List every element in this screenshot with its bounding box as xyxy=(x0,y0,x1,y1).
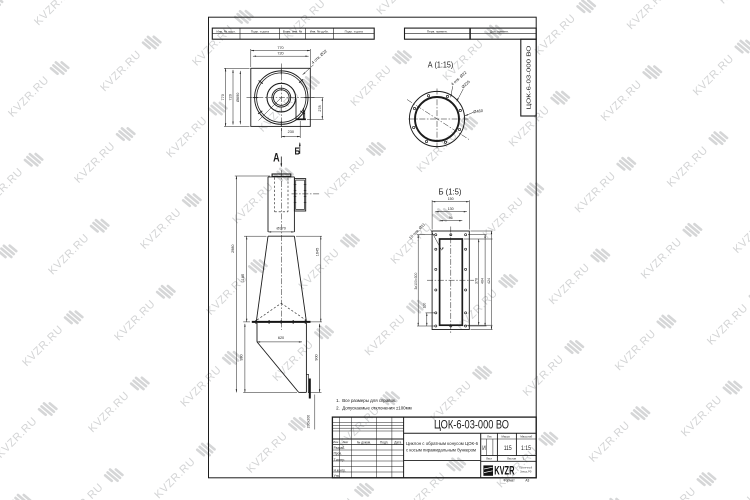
svg-text:1. Все размеры для справок.: 1. Все размеры для справок. xyxy=(336,398,396,403)
svg-text:Масса: Масса xyxy=(501,435,510,439)
svg-text:2980: 2980 xyxy=(231,244,235,252)
svg-text:Ø370: Ø370 xyxy=(277,226,286,230)
svg-text:900: 900 xyxy=(315,354,319,360)
svg-text:278: 278 xyxy=(318,105,322,111)
svg-text:Листов: Листов xyxy=(507,457,517,461)
svg-text:Формат: Формат xyxy=(503,478,515,482)
svg-text:720: 720 xyxy=(229,94,233,100)
svg-text:Инв. № дубл.: Инв. № дубл. xyxy=(310,29,329,33)
svg-text:KVZR: KVZR xyxy=(494,466,515,478)
svg-text:1645: 1645 xyxy=(316,248,320,256)
svg-text:Лист: Лист xyxy=(486,457,493,461)
svg-text:Пров.: Пров. xyxy=(334,452,343,456)
svg-text:Доп. примен.: Доп. примен. xyxy=(490,29,509,33)
svg-text:Б (1:5): Б (1:5) xyxy=(439,188,462,197)
svg-text:1: 1 xyxy=(523,457,525,461)
svg-text:370: 370 xyxy=(474,278,478,284)
svg-text:Подп.: Подп. xyxy=(380,440,389,444)
svg-text:Изм.: Изм. xyxy=(333,440,339,444)
svg-text:720: 720 xyxy=(277,52,283,56)
svg-text:Масштаб: Масштаб xyxy=(520,435,532,439)
svg-text:4 отв. Ø22: 4 отв. Ø22 xyxy=(310,48,328,65)
svg-text:Циклон с обратным конусом ЦОК-: Циклон с обратным конусом ЦОК-6 xyxy=(406,441,479,446)
svg-text:3х100=300: 3х100=300 xyxy=(414,272,418,289)
svg-text:И: И xyxy=(482,446,486,452)
svg-text:Ø690: Ø690 xyxy=(236,93,240,102)
svg-text:А (1:15): А (1:15) xyxy=(428,61,454,70)
svg-text:2. Допускаемые отклонения ±10: 2. Допускаемые отклонения ±100мм xyxy=(336,405,412,410)
svg-text:770: 770 xyxy=(277,46,283,50)
svg-text:115: 115 xyxy=(504,446,513,452)
svg-text:770: 770 xyxy=(221,94,225,100)
svg-text:Завод.РФ: Завод.РФ xyxy=(520,469,532,473)
svg-text:404: 404 xyxy=(481,278,485,284)
svg-text:200х200: 200х200 xyxy=(307,415,311,428)
svg-text:Кузнечный: Кузнечный xyxy=(519,466,532,470)
svg-text:100: 100 xyxy=(422,303,426,309)
svg-text:96: 96 xyxy=(449,216,453,220)
svg-text:230: 230 xyxy=(288,130,294,134)
svg-text:№ докум.: № докум. xyxy=(357,440,371,444)
svg-text:10 отв. Ø11: 10 отв. Ø11 xyxy=(408,221,427,240)
svg-text:1180: 1180 xyxy=(241,274,245,282)
svg-text:620: 620 xyxy=(278,336,284,340)
svg-text:Н.контр.: Н.контр. xyxy=(334,469,346,473)
svg-text:Разраб.: Разраб. xyxy=(334,446,346,450)
svg-text:Т.контр.: Т.контр. xyxy=(334,458,346,462)
svg-text:930: 930 xyxy=(239,354,243,360)
svg-text:с косым пирамидальным бункеро: с косым пирамидальным бункером xyxy=(406,448,476,453)
svg-text:Дата: Дата xyxy=(394,440,401,444)
svg-text:А: А xyxy=(273,151,280,165)
svg-text:ЦОК-6-03-000 ВО: ЦОК-6-03-000 ВО xyxy=(527,45,533,110)
svg-text:А3: А3 xyxy=(525,478,529,482)
svg-text:130: 130 xyxy=(448,207,454,211)
svg-text:Б: Б xyxy=(295,146,301,158)
svg-text:1:15: 1:15 xyxy=(521,446,532,452)
svg-text:ЦОК-6-03-000 ВО: ЦОК-6-03-000 ВО xyxy=(434,418,509,432)
svg-text:424: 424 xyxy=(487,278,491,284)
svg-text:Подп. и дата: Подп. и дата xyxy=(345,29,364,33)
svg-text:Лист: Лист xyxy=(343,440,350,444)
svg-text:Перв. примен.: Перв. примен. xyxy=(427,29,448,33)
svg-text:Инв. № подл.: Инв. № подл. xyxy=(217,29,236,33)
svg-text:Ø225: Ø225 xyxy=(460,79,471,90)
svg-text:150: 150 xyxy=(448,197,454,201)
svg-text:Подп. и дата: Подп. и дата xyxy=(251,29,270,33)
svg-text:Ø460: Ø460 xyxy=(473,108,484,114)
svg-text:Утв.: Утв. xyxy=(334,474,340,478)
svg-text:Взам. инв. №: Взам. инв. № xyxy=(283,29,303,33)
svg-text:Лит.: Лит. xyxy=(487,435,492,439)
